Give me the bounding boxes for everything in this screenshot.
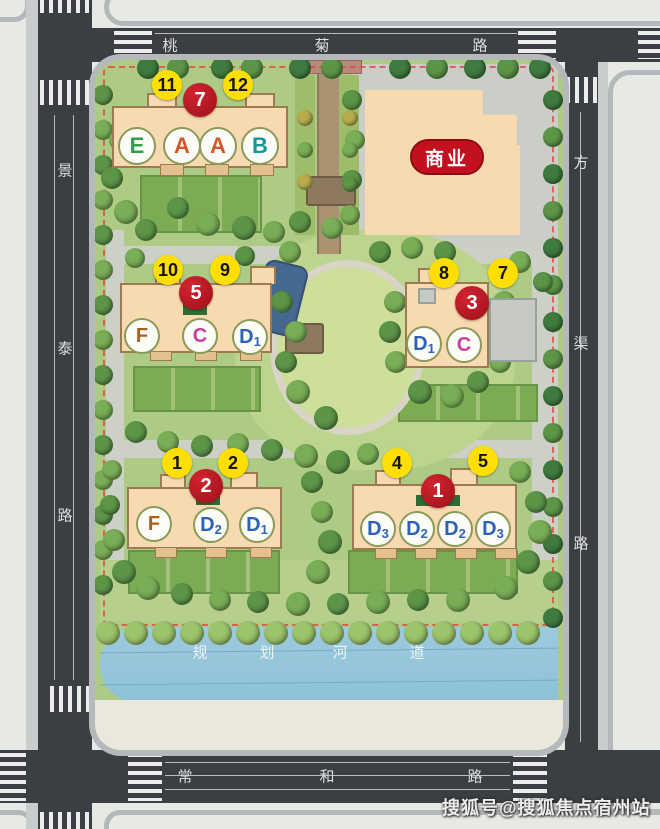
tree-icon <box>488 621 512 645</box>
unit-type-badge-D3: D3 <box>475 511 511 547</box>
unit-number-badge: 7 <box>488 258 518 288</box>
building-number-badge: 1 <box>421 474 455 508</box>
tree-icon <box>407 589 429 611</box>
road-label-top-2: 菊 <box>314 35 329 56</box>
tree-icon <box>102 460 122 480</box>
tree-icon <box>96 621 120 645</box>
site-area: 规 划 河 道 11 12 7 E A A B 商业 <box>95 60 563 750</box>
tree-icon <box>543 608 563 628</box>
unit-type-badge-D1: D1 <box>406 326 442 362</box>
building-entrance <box>250 164 274 176</box>
tree-icon <box>286 592 310 616</box>
unit-number-badge: 4 <box>382 448 412 478</box>
river-bank <box>95 700 563 750</box>
tree-icon <box>460 621 484 645</box>
building-entrance <box>205 164 229 176</box>
unit-type-badge-D1: D1 <box>239 507 275 543</box>
unit-type-badge-E: E <box>118 127 156 165</box>
tree-icon <box>306 560 330 584</box>
tree-icon <box>100 495 120 515</box>
crosswalk <box>128 753 162 801</box>
building-entrance <box>160 164 184 176</box>
sidewalk-block-east <box>608 70 660 814</box>
road-label-top-1: 桃 <box>162 35 177 56</box>
tree-icon <box>525 491 547 513</box>
unit-number-badge: 12 <box>223 70 253 100</box>
tree-icon <box>340 205 360 225</box>
tree-icon <box>432 621 456 645</box>
building-wing <box>250 266 276 284</box>
tree-icon <box>342 142 358 158</box>
tree-icon <box>533 272 553 292</box>
road-label-right-2: 渠 <box>573 333 588 354</box>
lane-line <box>165 775 510 776</box>
tree-icon <box>152 621 176 645</box>
tree-icon <box>285 321 307 343</box>
crosswalk <box>40 0 90 13</box>
tree-icon <box>543 164 563 184</box>
tree-icon <box>171 583 193 605</box>
lane-line <box>580 112 581 742</box>
building-number-badge: 7 <box>183 83 217 117</box>
tree-icon <box>301 471 323 493</box>
building-number-badge: 2 <box>189 469 223 503</box>
tree-icon <box>408 380 432 404</box>
building-entrance <box>250 547 272 558</box>
tree-icon <box>297 142 313 158</box>
tree-icon <box>366 590 390 614</box>
tree-icon <box>404 621 428 645</box>
crosswalk <box>518 31 556 59</box>
building-entrance <box>415 548 437 559</box>
tree-icon <box>292 621 316 645</box>
tree-icon <box>103 529 125 551</box>
tree-icon <box>286 380 310 404</box>
tree-icon <box>263 221 285 243</box>
tree-icon <box>136 576 160 600</box>
tree-icon <box>379 321 401 343</box>
tree-icon <box>180 621 204 645</box>
tree-icon <box>297 110 313 126</box>
building-entrance <box>205 547 227 558</box>
tree-icon <box>294 444 318 468</box>
tree-icon <box>440 384 464 408</box>
tree-icon <box>494 576 518 600</box>
building-number-badge: 3 <box>455 286 489 320</box>
tree-icon <box>236 621 260 645</box>
tree-icon <box>125 421 147 443</box>
unit-type-badge-F: F <box>136 506 172 542</box>
road-label-bottom-2: 和 <box>319 766 334 787</box>
road-right <box>565 28 598 803</box>
annex-box <box>418 288 436 304</box>
tree-icon <box>327 593 349 615</box>
tree-icon <box>318 530 342 554</box>
tree-icon <box>342 176 358 192</box>
tree-icon <box>112 560 136 584</box>
lane-line <box>165 762 510 763</box>
unit-number-badge: 9 <box>210 255 240 285</box>
unit-type-badge-A: A <box>163 127 201 165</box>
crosswalk <box>638 31 660 59</box>
tree-icon <box>289 211 311 233</box>
unit-type-badge-D2: D2 <box>437 511 473 547</box>
crosswalk <box>0 753 26 801</box>
tree-icon <box>543 460 563 480</box>
tree-icon <box>401 237 423 259</box>
tree-icon <box>261 439 283 461</box>
lane-line <box>73 115 74 680</box>
road-label-left-2: 泰 <box>57 338 72 359</box>
tree-icon <box>543 386 563 406</box>
road-label-right-3: 路 <box>573 533 588 554</box>
tree-icon <box>124 621 148 645</box>
tree-icon <box>196 212 220 236</box>
unit-type-badge-D2: D2 <box>193 507 229 543</box>
tree-icon <box>516 550 540 574</box>
road-label-left-1: 景 <box>57 160 72 181</box>
tree-icon <box>114 200 138 224</box>
tree-icon <box>543 127 563 147</box>
site-plan-map: 桃 菊 路 景 泰 路 方 渠 路 常 和 路 规 划 <box>0 0 660 829</box>
tree-icon <box>135 219 157 241</box>
tree-icon <box>342 110 358 126</box>
tree-icon <box>167 197 189 219</box>
road-label-left-3: 路 <box>57 505 72 526</box>
tree-icon <box>543 312 563 332</box>
tree-icon <box>247 591 269 613</box>
road-label-top-3: 路 <box>472 35 487 56</box>
tree-icon <box>326 450 350 474</box>
tree-icon <box>543 423 563 443</box>
tree-icon <box>232 216 256 240</box>
crosswalk <box>566 77 597 103</box>
building-entrance <box>150 351 172 361</box>
lane-line <box>54 115 55 680</box>
tree-icon <box>543 571 563 591</box>
tree-icon <box>191 435 213 457</box>
unit-number-badge: 2 <box>218 448 248 478</box>
lane-line <box>155 33 517 34</box>
unit-type-badge-C: C <box>446 327 482 363</box>
tree-icon <box>320 621 344 645</box>
tree-icon <box>543 201 563 221</box>
tree-icon <box>384 291 406 313</box>
tree-icon <box>321 217 343 239</box>
tree-icon <box>314 406 338 430</box>
tree-icon <box>446 588 470 612</box>
building-entrance <box>375 548 397 559</box>
tree-icon <box>342 90 362 110</box>
unit-type-badge-D1: D1 <box>232 319 268 355</box>
unit-number-badge: 5 <box>468 446 498 476</box>
tree-icon <box>376 621 400 645</box>
building-entrance <box>155 547 177 558</box>
tree-icon <box>385 351 407 373</box>
tree-icon <box>543 238 563 258</box>
tree-icon <box>279 241 301 263</box>
tree-icon <box>101 167 123 189</box>
tree-icon <box>369 241 391 263</box>
tree-icon <box>543 349 563 369</box>
tree-icon <box>467 371 489 393</box>
unit-type-badge-C: C <box>182 318 218 354</box>
watermark: 搜狐号@搜狐焦点宿州站 <box>442 794 651 820</box>
road-label-bottom-1: 常 <box>177 766 192 787</box>
tree-icon <box>208 621 232 645</box>
unit-number-badge: 1 <box>162 448 192 478</box>
unit-type-badge-A: A <box>199 127 237 165</box>
tree-icon <box>264 621 288 645</box>
road-label-right-1: 方 <box>573 152 588 173</box>
tree-icon <box>357 443 379 465</box>
unit-type-badge-D3: D3 <box>360 511 396 547</box>
lane-line <box>155 55 517 56</box>
sidewalk-block-north <box>104 0 660 26</box>
tree-icon <box>509 461 531 483</box>
tree-icon <box>528 520 552 544</box>
tree-icon <box>209 589 231 611</box>
commercial-label: 商业 <box>410 139 484 175</box>
crosswalk <box>40 80 90 105</box>
tree-icon <box>271 291 293 313</box>
road-label-bottom-3: 路 <box>467 766 482 787</box>
annex-building <box>489 298 537 362</box>
unit-number-badge: 11 <box>152 70 182 100</box>
unit-type-badge-B: B <box>241 127 279 165</box>
unit-type-badge-D2: D2 <box>399 511 435 547</box>
lane-line <box>165 789 510 790</box>
sidewalk-strip-west <box>26 0 38 829</box>
building-entrance <box>495 548 517 559</box>
unit-number-badge: 8 <box>429 258 459 288</box>
tree-icon <box>543 90 563 110</box>
crosswalk <box>40 812 90 829</box>
tree-icon <box>275 351 297 373</box>
tree-icon <box>348 621 372 645</box>
building-number-badge: 5 <box>179 276 213 310</box>
unit-type-badge-F: F <box>124 318 160 354</box>
tree-icon <box>125 248 145 268</box>
crosswalk <box>50 686 95 712</box>
unit-number-badge: 10 <box>153 255 183 285</box>
sidewalk-strip-east <box>598 28 608 803</box>
tree-icon <box>516 621 540 645</box>
tree-icon <box>297 174 313 190</box>
tree-icon <box>311 501 333 523</box>
building-entrance <box>455 548 477 559</box>
crosswalk <box>114 31 152 59</box>
